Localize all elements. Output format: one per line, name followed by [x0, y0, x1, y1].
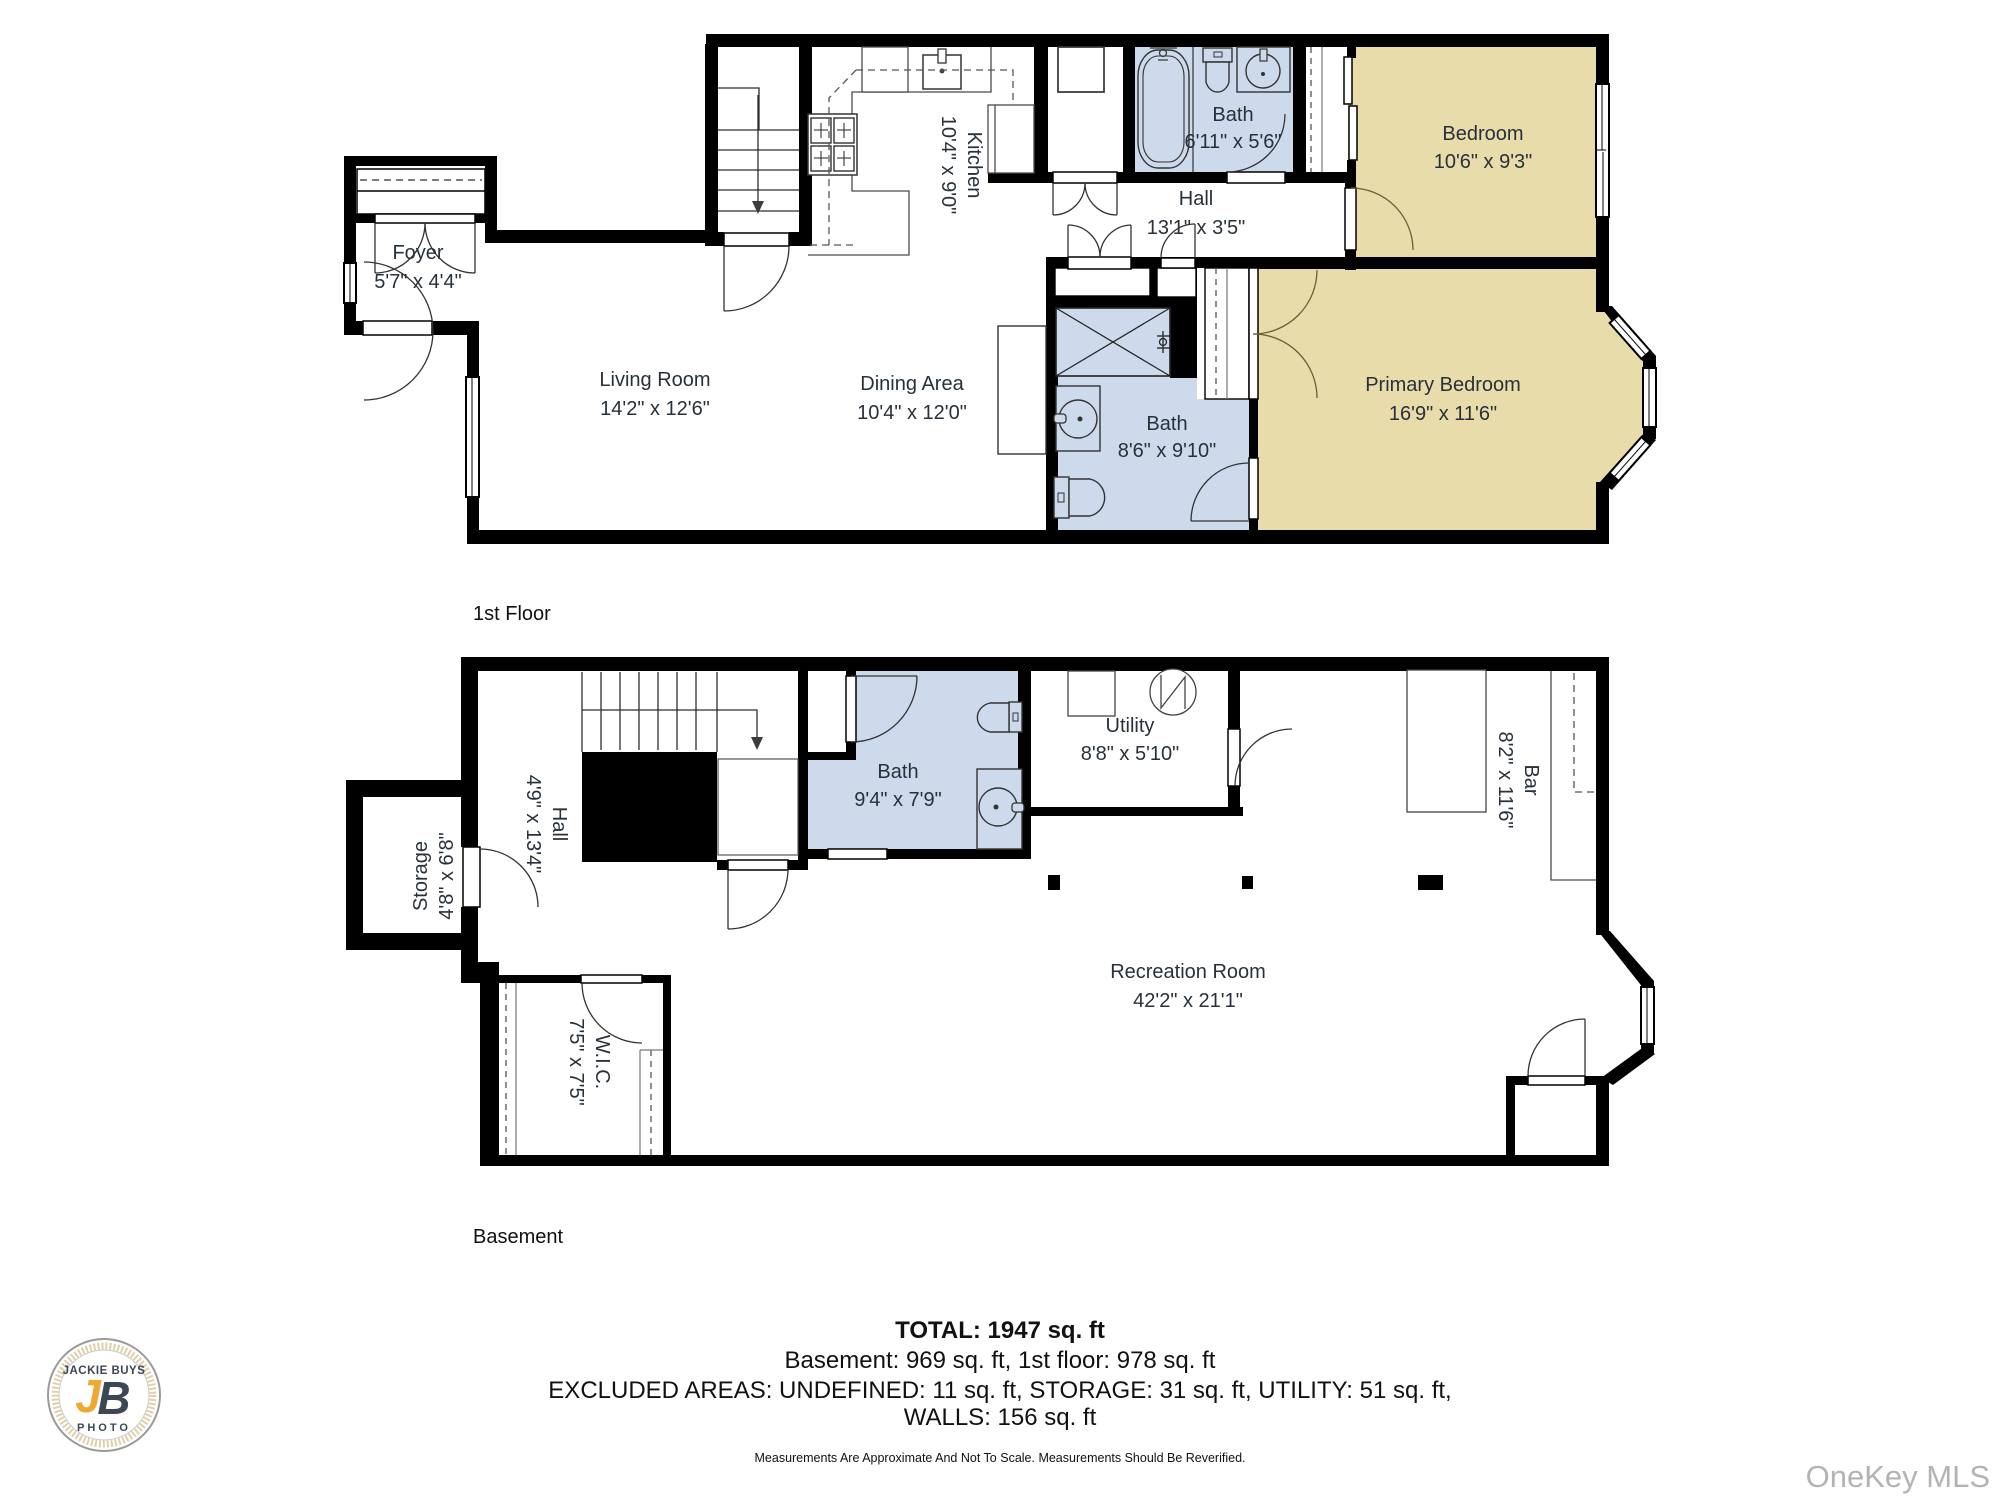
svg-text:EXCLUDED AREAS: UNDEFINED: 11: EXCLUDED AREAS: UNDEFINED: 11 sq. ft, ST…	[548, 1377, 1451, 1404]
svg-text:Storage: Storage	[410, 841, 432, 911]
svg-text:7'5" x 7'5": 7'5" x 7'5"	[565, 1018, 587, 1105]
svg-text:Bedroom: Bedroom	[1442, 123, 1523, 145]
svg-text:10'4" x 12'0": 10'4" x 12'0"	[857, 402, 967, 424]
svg-text:10'6" x 9'3": 10'6" x 9'3"	[1434, 151, 1533, 173]
svg-text:WALLS: 156 sq. ft: WALLS: 156 sq. ft	[904, 1404, 1097, 1431]
svg-text:Basement: Basement	[473, 1226, 563, 1248]
svg-text:10'4" x 9'0": 10'4" x 9'0"	[937, 116, 959, 215]
svg-text:Hall: Hall	[548, 807, 570, 841]
svg-text:8'8" x 5'10": 8'8" x 5'10"	[1081, 743, 1180, 765]
svg-text:9'4" x 7'9": 9'4" x 7'9"	[854, 789, 941, 811]
svg-text:4'9" x 13'4": 4'9" x 13'4"	[522, 775, 544, 874]
svg-text:Utility: Utility	[1106, 715, 1155, 737]
svg-text:B: B	[97, 1372, 130, 1424]
svg-text:1st Floor: 1st Floor	[473, 603, 551, 625]
svg-text:13'1" x 3'5": 13'1" x 3'5"	[1147, 217, 1246, 239]
svg-text:Living Room: Living Room	[599, 369, 710, 391]
svg-text:42'2" x 21'1": 42'2" x 21'1"	[1133, 990, 1243, 1012]
svg-text:Foyer: Foyer	[392, 242, 443, 264]
svg-text:Bath: Bath	[877, 761, 918, 783]
svg-text:PHOTO: PHOTO	[77, 1422, 131, 1434]
svg-text:8'2" x 11'6": 8'2" x 11'6"	[1494, 731, 1516, 828]
svg-text:6'11" x 5'6": 6'11" x 5'6"	[1184, 131, 1281, 153]
svg-text:5'7" x 4'4": 5'7" x 4'4"	[374, 271, 461, 293]
svg-text:8'6" x 9'10": 8'6" x 9'10"	[1118, 440, 1217, 462]
svg-text:OneKey MLS: OneKey MLS	[1806, 1459, 1990, 1494]
svg-text:W.I.C.: W.I.C.	[591, 1035, 613, 1089]
svg-text:Bar: Bar	[1520, 764, 1542, 795]
svg-text:Basement: 969 sq. ft, 1st floo: Basement: 969 sq. ft, 1st floor: 978 sq.…	[785, 1347, 1216, 1374]
svg-text:Bath: Bath	[1146, 413, 1187, 435]
svg-text:Bath: Bath	[1212, 104, 1253, 126]
svg-text:Dining Area: Dining Area	[860, 373, 964, 395]
svg-text:Kitchen: Kitchen	[963, 132, 985, 199]
svg-text:Measurements Are Approximate A: Measurements Are Approximate And Not To …	[755, 1451, 1246, 1465]
svg-text:14'2" x 12'6": 14'2" x 12'6"	[600, 398, 710, 420]
svg-text:Recreation Room: Recreation Room	[1110, 961, 1266, 983]
svg-text:16'9" x 11'6": 16'9" x 11'6"	[1389, 403, 1497, 425]
svg-text:4'8" x 6'8": 4'8" x 6'8"	[436, 832, 458, 919]
svg-text:TOTAL: 1947 sq. ft: TOTAL: 1947 sq. ft	[895, 1317, 1105, 1344]
svg-text:Primary Bedroom: Primary Bedroom	[1365, 374, 1521, 396]
svg-text:Hall: Hall	[1179, 188, 1213, 210]
